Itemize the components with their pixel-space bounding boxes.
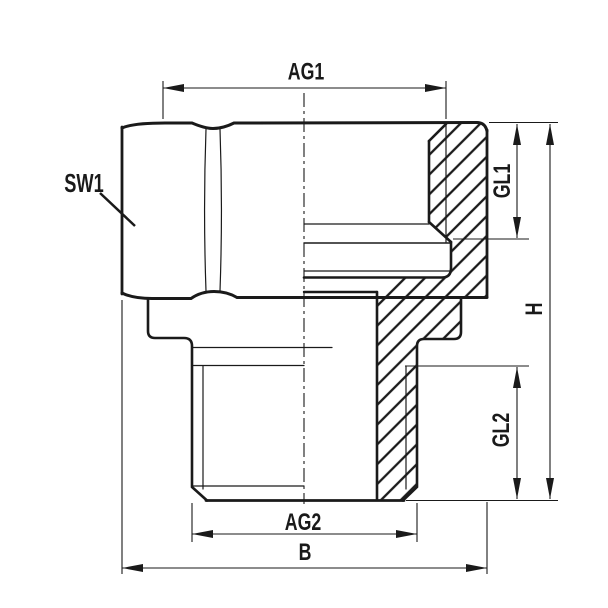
label-ag2: AG2 [285, 510, 322, 536]
ag1-arrow-left [163, 84, 184, 92]
gl1-arrow-bottom [513, 217, 521, 238]
h-arrow-bottom [546, 478, 554, 499]
gl1-arrow-top [513, 124, 521, 145]
ag2-arrow-left [192, 530, 213, 538]
undercut-groove-wall [443, 242, 451, 278]
gl2-arrow-bottom [513, 478, 521, 499]
label-gl2: GL2 [489, 413, 515, 448]
hex-facet-line-left [205, 129, 207, 291]
fitting-half-section-drawing: AG1 SW1 GL1 H GL2 AG2 B [0, 0, 608, 608]
engineering-drawing-canvas: AG1 SW1 GL1 H GL2 AG2 B [0, 0, 608, 608]
b-arrow-right [466, 564, 487, 572]
h-arrow-top [546, 124, 554, 145]
left-profile [148, 299, 207, 501]
label-gl1: GL1 [490, 164, 516, 199]
gl2-arrow-top [513, 367, 521, 388]
label-b: B [299, 540, 312, 566]
b-arrow-left [122, 564, 143, 572]
ag2-arrow-right [396, 530, 417, 538]
label-sw1: SW1 [64, 169, 103, 198]
sw1-leader-line [100, 193, 135, 226]
label-h: H [522, 303, 548, 316]
ag1-arrow-right [425, 84, 446, 92]
collar-and-thread-left [148, 299, 304, 501]
hex-facet-line-right [220, 129, 222, 291]
label-ag1: AG1 [288, 59, 325, 85]
